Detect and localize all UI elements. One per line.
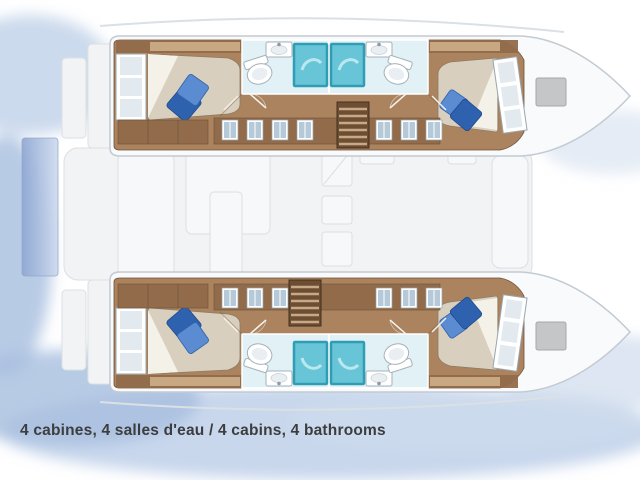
underbed-drawers [118,120,208,144]
aft-cabin [116,54,240,122]
yacht-layout-image: 4 cabines, 4 salles d'eau / 4 cabins, 4 … [0,0,640,480]
sink-aft [266,42,292,57]
sink-forward [366,42,392,57]
layout-caption: 4 cabines, 4 salles d'eau / 4 cabins, 4 … [20,422,620,440]
fwd-cabin-top-locker [430,42,500,51]
boat-floor-plan-svg [0,0,640,480]
aft-cabin-top-locker [150,42,240,51]
stairs-upper-hull [337,102,369,148]
upper-hull [110,36,630,156]
shower-forward [331,44,364,86]
shower-aft [294,44,327,86]
aft-cabin-window [116,54,146,120]
stern-dinghy-platform [22,138,58,276]
inboard-band [118,118,442,144]
lower-hull [110,272,630,392]
stairs-lower-hull [289,280,321,326]
bow-hatch [536,78,566,106]
